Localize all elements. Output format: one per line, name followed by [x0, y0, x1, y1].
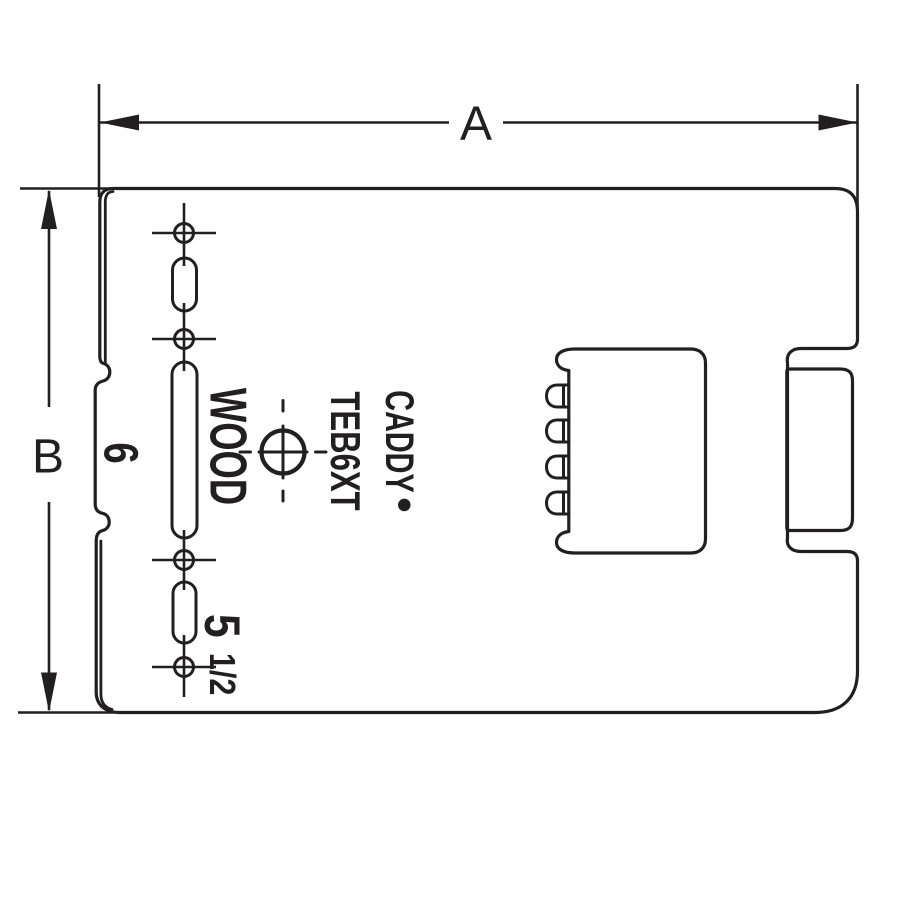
- registration-cross: [259, 426, 307, 478]
- material-label: WOOD: [199, 388, 258, 505]
- left-hem-line-bottom: [101, 541, 112, 710]
- bracket-drawing: A B CADDY • TEB6XT WOOD 6 5 1/2: [0, 0, 900, 900]
- left-hem-line-top: [105, 192, 113, 363]
- arrowhead-left: [100, 115, 139, 131]
- mounting-slot: [173, 582, 196, 643]
- cutout-boundary: [557, 349, 706, 553]
- spring-finger: [547, 456, 569, 478]
- spacing-five-fraction: 1/2: [202, 653, 242, 696]
- dimension-b-label: B: [32, 431, 64, 484]
- registered-mark: •: [380, 497, 429, 512]
- dimension-a-label: A: [460, 98, 492, 151]
- arrowhead-down: [41, 673, 57, 713]
- side-tab: [787, 369, 853, 531]
- dimension-a: A: [99, 84, 858, 213]
- model-label: TEB6XT: [322, 391, 369, 511]
- spring-finger: [547, 420, 569, 442]
- brand-label: CADDY: [377, 390, 422, 492]
- arrowhead-right: [819, 115, 858, 131]
- spring-finger: [547, 385, 569, 407]
- arrowhead-up: [41, 190, 57, 230]
- spacing-six-label: 6: [93, 442, 146, 463]
- technical-drawing: A B CADDY • TEB6XT WOOD 6 5 1/2: [0, 0, 900, 900]
- mounting-slot-long: [172, 362, 197, 538]
- part-markings: CADDY • TEB6XT WOOD 6 5 1/2: [93, 388, 429, 695]
- spacing-five-whole: 5: [194, 614, 250, 638]
- spacing-five-half-label: 5 1/2: [194, 614, 250, 695]
- spring-finger: [547, 492, 569, 514]
- spring-fingers: [547, 385, 569, 514]
- box-cutout: [547, 349, 706, 553]
